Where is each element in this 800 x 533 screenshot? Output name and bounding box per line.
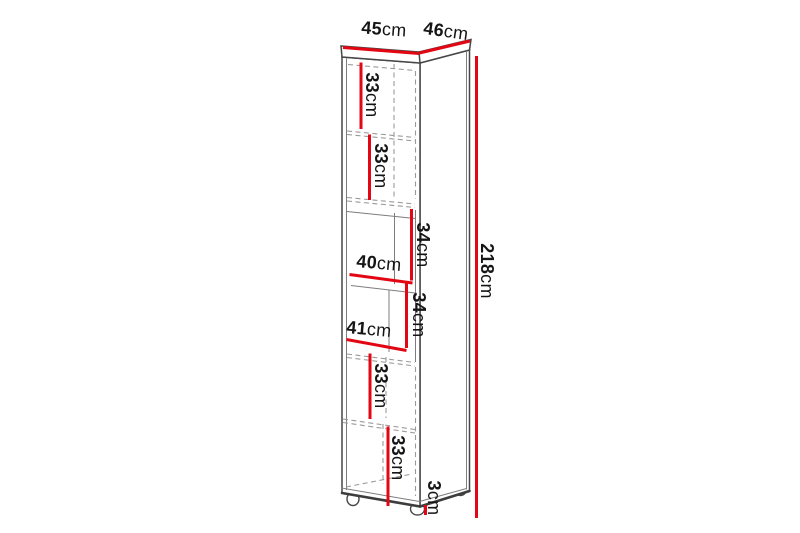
dim-label-niche-1-height: 34cm	[413, 222, 433, 267]
dim-label-compartment-4: 33cm	[388, 435, 408, 480]
cabinet-drawing: 45cm 46cm 218cm 33cm 33cm 34cm 40cm 34cm…	[0, 0, 800, 533]
dim-label-compartment-2: 33cm	[371, 143, 391, 188]
dim-label-niche-2-height: 34cm	[409, 292, 429, 337]
dim-label-feet-height: 3cm	[424, 481, 444, 516]
cabinet-side-face	[420, 50, 470, 507]
furniture-dimension-diagram: 45cm 46cm 218cm 33cm 33cm 34cm 40cm 34cm…	[0, 0, 800, 533]
dim-label-compartment-1: 33cm	[362, 72, 382, 117]
dim-label-total-height: 218cm	[477, 243, 497, 299]
dim-label-niche-2-width: 41cm	[346, 317, 393, 341]
dim-label-niche-1-width: 40cm	[356, 251, 403, 275]
dim-label-front-width: 45cm	[361, 17, 408, 40]
dim-label-side-depth: 46cm	[422, 18, 470, 44]
dim-label-compartment-3: 33cm	[371, 363, 391, 408]
